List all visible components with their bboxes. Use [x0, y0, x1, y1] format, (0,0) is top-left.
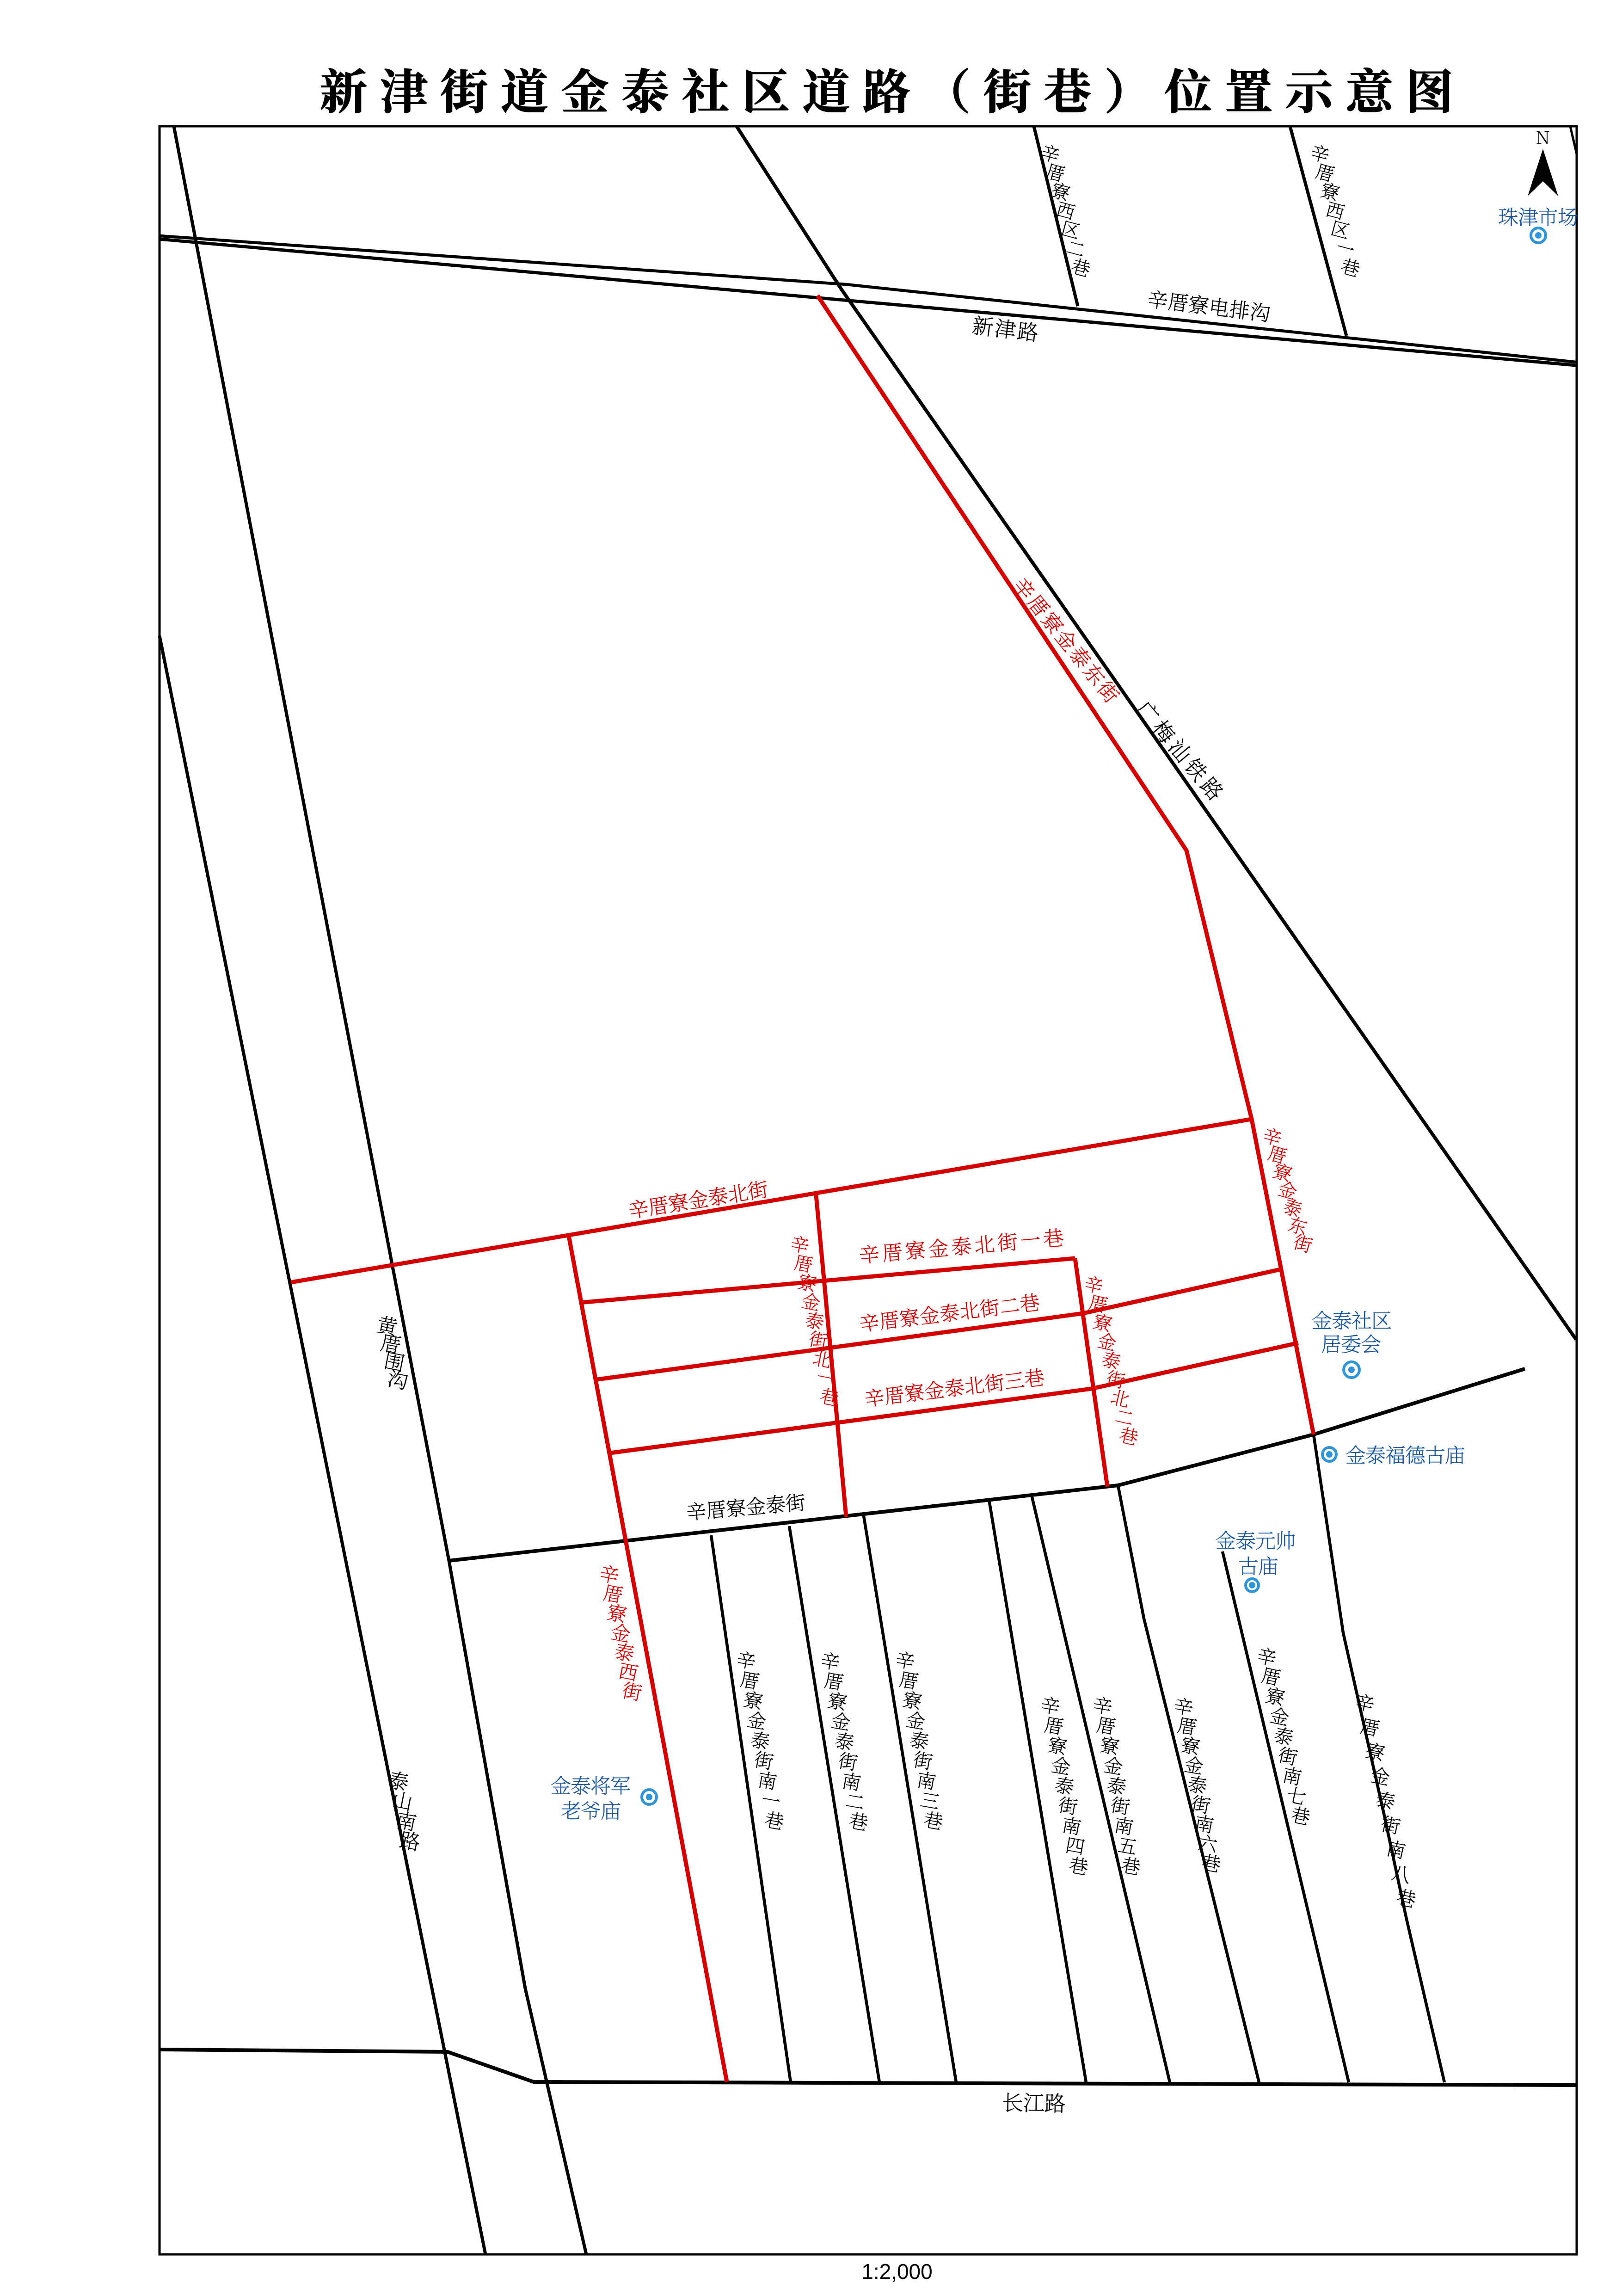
svg-text:1:2,000: 1:2,000 — [861, 2259, 932, 2284]
